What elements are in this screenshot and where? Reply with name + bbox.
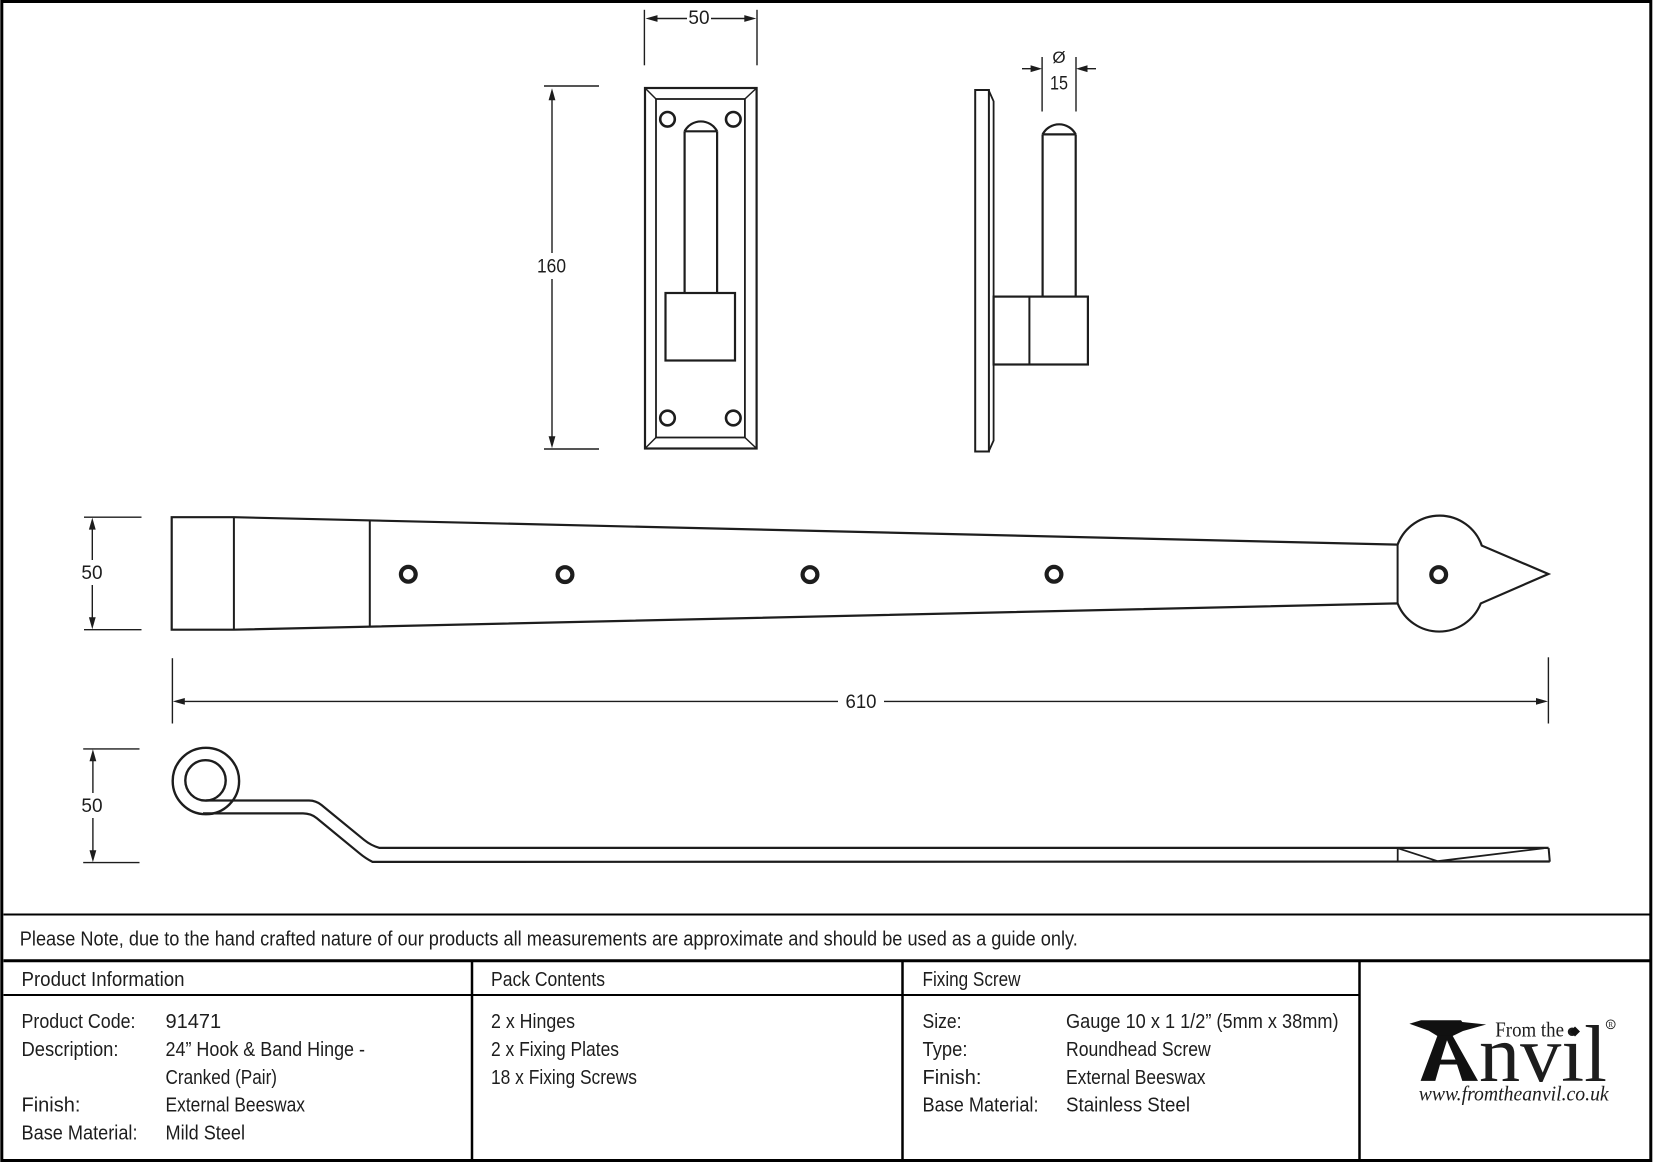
svg-text:Fixing Screw: Fixing Screw	[923, 969, 1021, 991]
svg-text:Type:: Type:	[923, 1039, 968, 1061]
svg-text:160: 160	[537, 257, 566, 278]
svg-text:2 x Hinges: 2 x Hinges	[491, 1011, 575, 1033]
svg-text:Description:: Description:	[22, 1039, 119, 1061]
svg-text:Base Material:: Base Material:	[22, 1123, 138, 1145]
svg-text:91471: 91471	[166, 1011, 222, 1033]
svg-text:Mild Steel: Mild Steel	[166, 1123, 246, 1145]
svg-text:Base Material:: Base Material:	[923, 1095, 1039, 1117]
svg-text:Stainless Steel: Stainless Steel	[1066, 1095, 1190, 1117]
svg-text:www.fromtheanvil.co.uk: www.fromtheanvil.co.uk	[1419, 1082, 1610, 1106]
svg-text:Size:: Size:	[923, 1011, 962, 1033]
svg-text:Product Information: Product Information	[22, 969, 185, 991]
svg-text:18 x Fixing Screws: 18 x Fixing Screws	[491, 1067, 637, 1089]
svg-text:Please Note, due to the hand c: Please Note, due to the hand crafted nat…	[20, 929, 1078, 951]
svg-text:External Beeswax: External Beeswax	[1066, 1067, 1206, 1089]
svg-text:Roundhead Screw: Roundhead Screw	[1066, 1039, 1211, 1061]
svg-text:R: R	[1608, 1021, 1613, 1029]
svg-text:Finish:: Finish:	[923, 1067, 982, 1089]
svg-text:50: 50	[81, 796, 102, 817]
svg-text:Ø: Ø	[1052, 48, 1065, 67]
svg-text:Product Code:: Product Code:	[22, 1011, 136, 1033]
svg-text:24” Hook & Band Hinge -: 24” Hook & Band Hinge -	[166, 1039, 366, 1061]
svg-text:External Beeswax: External Beeswax	[166, 1095, 306, 1117]
svg-text:50: 50	[81, 563, 102, 584]
svg-text:50: 50	[688, 8, 709, 29]
svg-text:610: 610	[846, 692, 877, 713]
svg-text:15: 15	[1050, 74, 1068, 95]
svg-text:Finish:: Finish:	[22, 1095, 81, 1117]
svg-text:Gauge 10 x 1 1/2” (5mm x 38mm): Gauge 10 x 1 1/2” (5mm x 38mm)	[1066, 1011, 1339, 1033]
svg-text:2 x Fixing Plates: 2 x Fixing Plates	[491, 1039, 619, 1061]
svg-text:From the: From the	[1495, 1017, 1564, 1041]
svg-text:Pack Contents: Pack Contents	[491, 969, 605, 991]
svg-text:Cranked (Pair): Cranked (Pair)	[166, 1067, 278, 1089]
